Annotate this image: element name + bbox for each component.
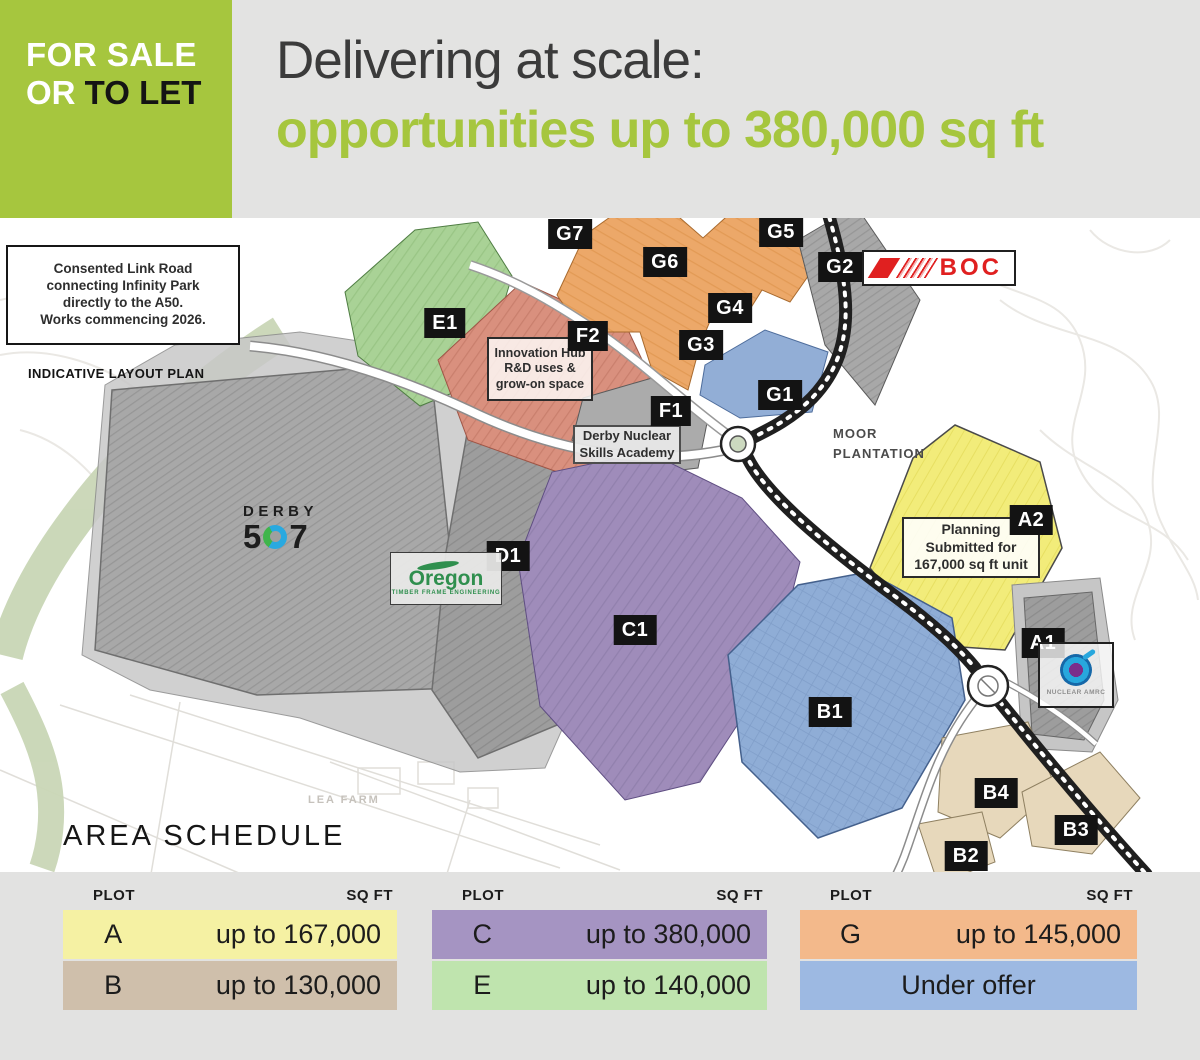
plot-label-g2: G2 [818, 252, 862, 282]
area-schedule-title: AREA SCHEDULE [63, 820, 345, 853]
row-value: up to 140,000 [533, 970, 768, 1001]
plot-header: PLOT [830, 887, 872, 904]
badge-for-sale: FOR SALE [26, 36, 232, 74]
amrc-swirl-tail [1082, 648, 1096, 660]
row-value: up to 380,000 [533, 919, 768, 950]
note-line: directly to the A50. [8, 295, 238, 312]
plot-label-e1: E1 [424, 308, 465, 338]
plot-label-b4: B4 [975, 778, 1018, 808]
derby-ring-hole [270, 531, 281, 542]
plot-header: PLOT [93, 887, 135, 904]
derby-ring-icon [263, 525, 287, 549]
nuclear-amrc-logo: NUCLEAR AMRC [1038, 642, 1114, 708]
moor-plantation-label: MOOR PLANTATION [833, 424, 925, 464]
row-plot: B [63, 970, 163, 1001]
row-value: up to 145,000 [901, 919, 1137, 950]
roundabout-north [721, 427, 755, 461]
plot-label-g4: G4 [708, 293, 752, 323]
row-value: up to 167,000 [163, 919, 397, 950]
page-title: Delivering at scale: [276, 30, 704, 91]
page-subtitle: opportunities up to 380,000 sq ft [276, 100, 1043, 160]
row-plot: C [432, 919, 533, 950]
boc-logo: BOC [862, 250, 1016, 286]
sqft-header: SQ FT [716, 887, 763, 904]
row-plot: E [432, 970, 533, 1001]
derby-507-logo: DERBY 5 7 [243, 503, 318, 553]
moor-line: PLANTATION [833, 444, 925, 464]
schedule-column-3: PLOT SQ FT G up to 145,000 Under offer [800, 882, 1137, 1010]
plot-label-g3: G3 [679, 330, 723, 360]
plot-label-c1: C1 [614, 615, 657, 645]
note-line: Submitted for [904, 539, 1038, 557]
brochure-page: FOR SALE OR TO LET Delivering at scale: … [0, 0, 1200, 1060]
schedule-header: PLOT SQ FT [432, 882, 767, 908]
moor-line: MOOR [833, 424, 925, 444]
plot-label-g1: G1 [758, 380, 802, 410]
row-value: up to 130,000 [163, 970, 397, 1001]
roundabout-south [968, 666, 1008, 706]
sqft-header: SQ FT [346, 887, 393, 904]
badge-to-let: TO LET [85, 74, 202, 111]
plot-label-g6: G6 [643, 247, 687, 277]
plot-label-b3: B3 [1055, 815, 1098, 845]
plot-header: PLOT [462, 887, 504, 904]
note-line: grow-on space [489, 377, 591, 393]
sqft-header: SQ FT [1086, 887, 1133, 904]
note-line: 167,000 sq ft unit [904, 556, 1038, 574]
boc-stripe-icon [868, 258, 900, 278]
row-value: Under offer [800, 970, 1137, 1001]
note-line: connecting Infinity Park [8, 278, 238, 295]
note-line: Consented Link Road [8, 261, 238, 278]
schedule-row-a: A up to 167,000 [63, 910, 397, 959]
badge-or: OR [26, 74, 76, 111]
note-line: R&D uses & [489, 361, 591, 377]
schedule-row-b: B up to 130,000 [63, 961, 397, 1010]
amrc-swirl-icon [1060, 654, 1092, 686]
schedule-column-2: PLOT SQ FT C up to 380,000 E up to 140,0… [432, 882, 767, 1010]
schedule-row-g: G up to 145,000 [800, 910, 1137, 959]
note-line: Skills Academy [575, 445, 679, 461]
derby-507-number: 5 7 [243, 520, 318, 553]
oregon-wordmark: Oregon [409, 568, 484, 590]
oregon-tagline: TIMBER FRAME ENGINEERING [392, 590, 501, 596]
row-plot: A [63, 919, 163, 950]
schedule-header: PLOT SQ FT [800, 882, 1137, 908]
amrc-wordmark: NUCLEAR AMRC [1047, 689, 1106, 696]
badge-or-to-let: OR TO LET [26, 74, 232, 112]
oregon-logo: Oregon TIMBER FRAME ENGINEERING [390, 552, 502, 605]
derby-7: 7 [289, 520, 307, 553]
plot-label-g7: G7 [548, 219, 592, 249]
note-line: Derby Nuclear [575, 428, 679, 444]
header-band: FOR SALE OR TO LET Delivering at scale: … [0, 0, 1200, 218]
row-plot: G [800, 919, 901, 950]
plot-label-f2: F2 [568, 321, 608, 351]
indicative-layout-plan-label: INDICATIVE LAYOUT PLAN [28, 366, 204, 381]
plot-label-a2: A2 [1010, 505, 1053, 535]
schedule-row-e: E up to 140,000 [432, 961, 767, 1010]
schedule-row-under-offer: Under offer [800, 961, 1137, 1010]
schedule-header: PLOT SQ FT [63, 882, 397, 908]
schedule-row-c: C up to 380,000 [432, 910, 767, 959]
lea-farm-label: LEA FARM [308, 794, 380, 806]
derby-5: 5 [243, 520, 261, 553]
schedule-column-1: PLOT SQ FT A up to 167,000 B up to 130,0… [63, 882, 397, 1010]
boc-stripes-icon [896, 258, 938, 278]
note-line: Works commencing 2026. [8, 312, 238, 329]
nuclear-skills-academy-note: Derby Nuclear Skills Academy [573, 425, 681, 464]
plot-label-f1: F1 [651, 396, 691, 426]
consented-link-road-note: Consented Link Road connecting Infinity … [6, 245, 240, 345]
for-sale-badge: FOR SALE OR TO LET [0, 0, 232, 218]
plot-label-g5: G5 [759, 217, 803, 247]
plot-label-b2: B2 [945, 841, 988, 871]
boc-wordmark: BOC [940, 254, 1002, 282]
plot-label-b1: B1 [809, 697, 852, 727]
